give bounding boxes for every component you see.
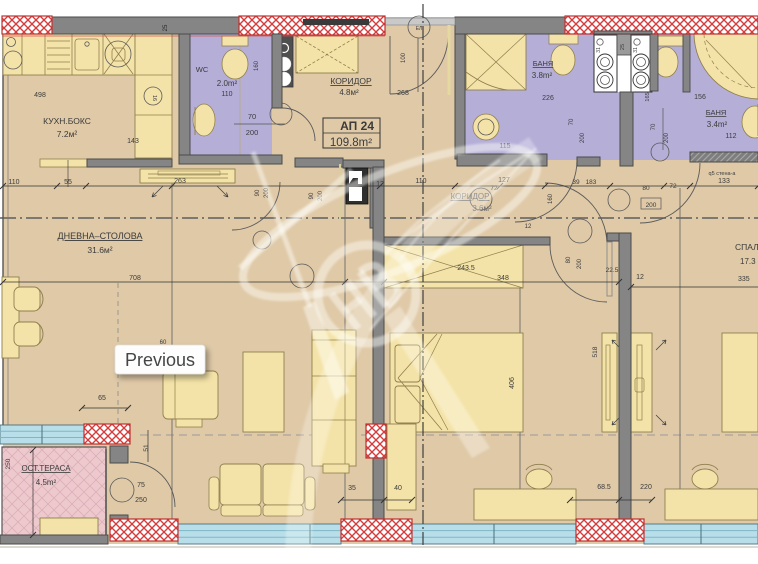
svg-text:348: 348 — [497, 275, 509, 282]
svg-text:12: 12 — [525, 224, 532, 230]
svg-text:200: 200 — [246, 128, 259, 137]
svg-text:12: 12 — [636, 274, 644, 281]
svg-text:17.3: 17.3 — [740, 257, 756, 266]
svg-text:7.2м²: 7.2м² — [57, 129, 78, 139]
svg-text:25: 25 — [620, 44, 626, 50]
svg-text:250: 250 — [5, 458, 12, 469]
svg-text:143: 143 — [127, 138, 139, 145]
svg-text:112: 112 — [725, 133, 736, 140]
svg-text:2.0m²: 2.0m² — [217, 79, 238, 88]
svg-text:АП 24: АП 24 — [340, 119, 374, 133]
svg-text:110: 110 — [415, 178, 426, 185]
svg-text:708: 708 — [129, 275, 141, 282]
svg-text:31.6м²: 31.6м² — [87, 245, 112, 255]
svg-text:65: 65 — [98, 395, 106, 402]
svg-text:160: 160 — [548, 193, 554, 204]
svg-text:31: 31 — [596, 47, 602, 53]
svg-text:80: 80 — [642, 185, 650, 192]
svg-text:109.8m²: 109.8m² — [330, 137, 372, 149]
svg-text:70: 70 — [651, 123, 657, 130]
svg-text:4.5m²: 4.5m² — [36, 478, 57, 487]
svg-text:Previous: Previous — [125, 350, 195, 370]
svg-text:75: 75 — [137, 482, 145, 489]
svg-text:ОСТ.ТЕРАСА: ОСТ.ТЕРАСА — [21, 464, 71, 473]
svg-text:250: 250 — [135, 497, 147, 504]
svg-text:39: 39 — [572, 179, 580, 186]
svg-text:183: 183 — [586, 179, 597, 186]
svg-text:51: 51 — [143, 444, 150, 452]
svg-text:3.4m²: 3.4m² — [707, 120, 728, 129]
svg-text:WC: WC — [196, 65, 209, 74]
svg-text:35: 35 — [348, 485, 356, 492]
svg-text:3.8m²: 3.8m² — [532, 71, 553, 80]
svg-text:40: 40 — [394, 485, 402, 492]
svg-text:68.5: 68.5 — [597, 484, 611, 491]
svg-text:КУХН.БОКС: КУХН.БОКС — [43, 116, 91, 126]
svg-text:406: 406 — [509, 377, 516, 389]
svg-text:70: 70 — [248, 112, 256, 121]
svg-text:31: 31 — [633, 47, 639, 53]
svg-text:16: 16 — [151, 95, 157, 101]
svg-text:200: 200 — [580, 132, 586, 143]
svg-text:200: 200 — [646, 202, 657, 209]
svg-text:72: 72 — [669, 183, 677, 190]
svg-text:90: 90 — [309, 192, 315, 199]
svg-text:110: 110 — [221, 91, 232, 98]
svg-text:q5 стена-а: q5 стена-а — [709, 171, 737, 177]
svg-text:200: 200 — [664, 132, 670, 143]
svg-text:55: 55 — [64, 179, 72, 186]
svg-text:243.5: 243.5 — [457, 265, 475, 272]
svg-text:200: 200 — [577, 258, 583, 269]
svg-text:90: 90 — [255, 189, 261, 196]
svg-text:226: 226 — [542, 95, 554, 102]
svg-text:12: 12 — [376, 181, 384, 188]
svg-text:160: 160 — [254, 60, 260, 71]
svg-text:80: 80 — [566, 256, 572, 263]
svg-text:25: 25 — [163, 24, 169, 31]
svg-text:СПАЛ: СПАЛ — [735, 242, 758, 252]
svg-text:165: 165 — [645, 92, 651, 101]
svg-text:220: 220 — [640, 484, 652, 491]
svg-text:70: 70 — [569, 118, 575, 125]
svg-text:263: 263 — [174, 178, 186, 185]
svg-text:498: 498 — [34, 92, 46, 99]
svg-text:110: 110 — [8, 179, 19, 186]
svg-text:4.8м²: 4.8м² — [339, 88, 359, 97]
svg-text:100: 100 — [401, 52, 407, 63]
svg-text:22.5: 22.5 — [606, 267, 619, 274]
svg-text:КОРИДОР: КОРИДОР — [330, 76, 372, 86]
svg-text:518: 518 — [592, 346, 599, 357]
svg-text:ЕЛ: ЕЛ — [416, 26, 423, 32]
svg-text:БАНЯ: БАНЯ — [706, 108, 727, 117]
svg-text:ДНЕВНА–СТОЛОВА: ДНЕВНА–СТОЛОВА — [58, 231, 143, 241]
svg-text:268: 268 — [397, 90, 409, 97]
svg-text:БАНЯ: БАНЯ — [533, 59, 554, 68]
svg-text:156: 156 — [694, 94, 706, 101]
svg-text:335: 335 — [738, 276, 750, 283]
svg-text:133: 133 — [718, 178, 730, 185]
